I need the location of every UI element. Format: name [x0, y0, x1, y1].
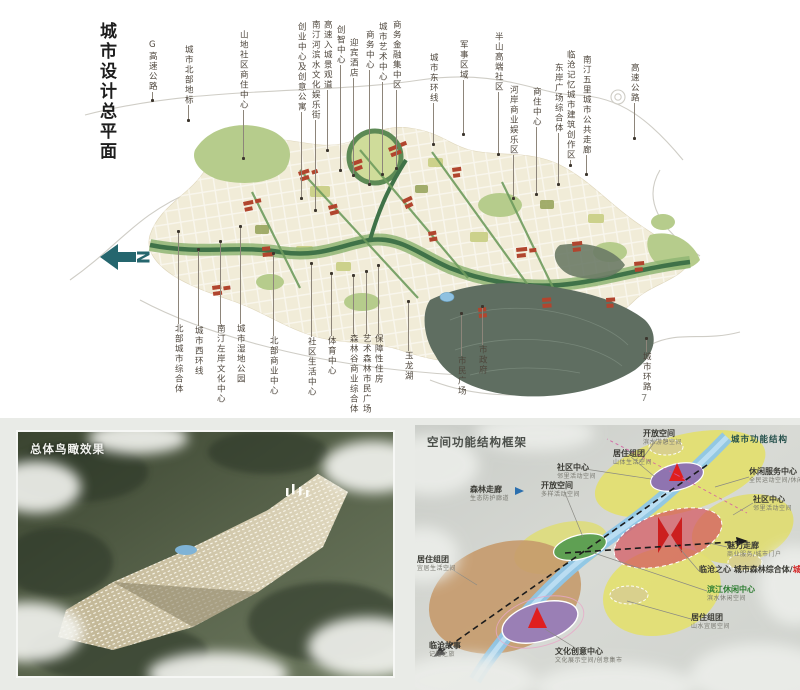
callout-leader-line	[482, 308, 483, 345]
callout-anchor-dot	[535, 193, 538, 196]
callout-leader-line	[513, 155, 514, 197]
callout-leader-line	[301, 112, 302, 197]
callout-leader-line	[558, 133, 559, 183]
callout-leader-line	[646, 340, 647, 352]
callout-leader-line	[220, 243, 221, 324]
map-callout-label: 城市东环线	[429, 53, 438, 103]
callout-leader-line	[463, 80, 464, 133]
aerial-view-panel: 总体鸟瞰效果	[16, 430, 395, 678]
callout-leader-line	[366, 273, 367, 334]
diagram-label: 居住组团山体生活空间	[613, 449, 652, 467]
callout-leader-line	[327, 90, 328, 149]
callout-anchor-dot	[395, 167, 398, 170]
callout-leader-line	[178, 233, 179, 324]
map-callout: 艺术森林市民广场	[360, 270, 372, 414]
master-plan-section: 城市设计总平面 N G高速公路城市北部地标山地社区商住中心创业中心及创意公寓南汀…	[0, 0, 800, 420]
map-callout: 保障性住房	[372, 264, 384, 384]
diagram-label: 森林走廊生态防护廊道	[470, 485, 509, 503]
map-callout-label: 南汀左岸文化中心	[216, 324, 225, 404]
map-callout-label: 河岸商业娱乐区	[509, 85, 518, 155]
callout-anchor-dot	[151, 99, 154, 102]
callout-anchor-dot	[352, 174, 355, 177]
map-callout-label: 商住中心	[532, 87, 541, 127]
callout-leader-line	[408, 303, 409, 351]
page-title: 城市设计总平面	[94, 22, 119, 162]
map-callout-label: 市政府	[478, 345, 487, 375]
map-callout-label: 半山高端社区	[494, 32, 503, 92]
map-callout-label: 商务金融集中区	[392, 20, 401, 90]
map-callout-label: 森林谷商业综合体	[349, 334, 358, 414]
diagram-label: 社区中心邻里活动空间	[557, 463, 596, 481]
map-callout-label: 北部城市综合体	[174, 324, 183, 394]
map-callout-label: 军事区域	[459, 40, 468, 80]
map-callout: 商务中心	[363, 30, 375, 186]
diagram-label: 社区中心邻里活动空间	[753, 495, 792, 513]
callout-anchor-dot	[368, 183, 371, 186]
map-callout: 市政府	[476, 305, 488, 375]
map-callout-label: 城市北部地标	[184, 45, 193, 105]
map-callout: 森林谷商业综合体	[347, 274, 359, 414]
diagram-label: 开放空间多样活动空间	[541, 481, 580, 499]
map-callout: 高速入城景观道	[321, 20, 333, 152]
callout-anchor-dot	[432, 143, 435, 146]
map-callout: 市民广场	[455, 312, 467, 396]
diagram-label: 休闲服务中心全民运动空间/休闲服务	[749, 467, 800, 485]
map-callout: 城市西环线	[192, 248, 204, 376]
map-callout: 城市环路	[640, 337, 652, 392]
map-callout-label: 玉龙湖	[404, 351, 413, 381]
callout-leader-line	[353, 277, 354, 334]
callout-leader-line	[198, 251, 199, 326]
map-callout: 临沧记忆城市建筑创作区	[564, 50, 576, 167]
map-callout: 河岸商业娱乐区	[507, 85, 519, 200]
map-callout-label: 社区生活中心	[307, 337, 316, 397]
map-callout: 体育中心	[325, 272, 337, 376]
callout-anchor-dot	[497, 153, 500, 156]
map-callout-label: 高速入城景观道	[323, 20, 332, 90]
callout-leader-line	[243, 110, 244, 157]
svg-text:N: N	[132, 250, 152, 264]
aerial-view-image	[18, 432, 393, 676]
map-callout: 北部商业中心	[267, 252, 279, 396]
map-callout-label: 临沧记忆城市建筑创作区	[566, 50, 575, 160]
callout-leader-line	[433, 103, 434, 143]
diagram-label: 临沧之心 城市森林综合体/城市地标	[699, 565, 800, 575]
map-callout: 迎宾酒店	[347, 38, 359, 177]
callout-leader-line	[240, 228, 241, 324]
structure-diagram-panel: 空间功能结构框架 城市功能结构 森林走廊生态防护廊道开放空间多样活动空间居住组团…	[415, 425, 800, 690]
diagram-label: 居住组团宜居生活空间	[417, 555, 456, 573]
callout-anchor-dot	[633, 137, 636, 140]
map-callout-label: 市民广场	[457, 356, 466, 396]
callout-anchor-dot	[585, 173, 588, 176]
map-callout-label: 南汀五里城市公共走廊	[582, 55, 591, 155]
map-callout: 南汀河滨水文化娱乐街	[309, 20, 321, 212]
map-callout: 商务金融集中区	[390, 20, 402, 170]
map-callout-label: 创业中心及创意公寓	[297, 22, 306, 112]
callout-anchor-dot	[242, 157, 245, 160]
callout-leader-line	[369, 70, 370, 183]
map-callout-label: 南汀河滨水文化娱乐街	[311, 20, 320, 120]
map-callout: 城市东环线	[427, 53, 439, 146]
map-callout-label: 体育中心	[327, 336, 336, 376]
map-callout: 南汀五里城市公共走廊	[580, 55, 592, 176]
map-callout-label: 北部商业中心	[269, 336, 278, 396]
map-callout: 南汀左岸文化中心	[214, 240, 226, 404]
callout-leader-line	[311, 265, 312, 337]
map-callout: 高速公路	[628, 63, 640, 140]
map-callout-label: 高速公路	[630, 63, 639, 103]
map-callout-label: 迎宾酒店	[349, 38, 358, 78]
map-callout: 玉龙湖	[402, 300, 414, 381]
callout-anchor-dot	[314, 209, 317, 212]
callout-anchor-dot	[512, 197, 515, 200]
callout-leader-line	[378, 267, 379, 334]
map-callout: 北部城市综合体	[172, 230, 184, 394]
callout-leader-line	[340, 65, 341, 169]
map-callout-label: 城市西环线	[194, 326, 203, 376]
callout-anchor-dot	[381, 173, 384, 176]
map-callout-label: 城市艺术中心	[378, 22, 387, 82]
bottom-panels: 总体鸟瞰效果	[0, 418, 800, 690]
map-callout-label: 艺术森林市民广场	[362, 334, 371, 414]
map-callout-label: G高速公路	[148, 40, 157, 92]
map-callout-label: 城市湿地公园	[236, 324, 245, 384]
map-callout-label: 商务中心	[365, 30, 374, 70]
callout-anchor-dot	[339, 169, 342, 172]
callout-anchor-dot	[462, 133, 465, 136]
callout-anchor-dot	[326, 149, 329, 152]
structure-legend-title: 城市功能结构	[731, 433, 788, 445]
diagram-label: 临沧故事记忆之旅	[429, 641, 461, 659]
north-arrow-icon: N	[98, 242, 152, 276]
map-callout: 山地社区商住中心	[237, 30, 249, 160]
page-number: 7	[641, 393, 647, 404]
diagram-label: 滨江休闲中心滨水休闲空间	[707, 585, 755, 603]
map-callout-label: 城市环路	[642, 352, 651, 392]
map-callout: 城市艺术中心	[376, 22, 388, 176]
diagram-label: 居住组团山水宜居空间	[691, 613, 730, 631]
map-callout: 半山高端社区	[492, 32, 504, 156]
map-callout-label: 创智中心	[336, 25, 345, 65]
callout-leader-line	[586, 155, 587, 173]
callout-anchor-dot	[187, 119, 190, 122]
callout-leader-line	[273, 255, 274, 336]
callout-leader-line	[461, 315, 462, 356]
callout-leader-line	[396, 90, 397, 167]
callout-anchor-dot	[569, 164, 572, 167]
map-callout: 军事区域	[457, 40, 469, 136]
map-callout: 城市北部地标	[182, 45, 194, 122]
map-callout-label: 山地社区商住中心	[239, 30, 248, 110]
map-callout: 城市湿地公园	[234, 225, 246, 384]
diagram-label: 开放空间滨水游憩空间	[643, 429, 682, 447]
callout-anchor-dot	[300, 197, 303, 200]
map-callout-label: 东岸广场综合体	[554, 63, 563, 133]
map-callout: 社区生活中心	[305, 262, 317, 397]
map-callout: 东岸广场综合体	[552, 63, 564, 186]
callout-leader-line	[353, 78, 354, 174]
map-callout-label: 保障性住房	[374, 334, 383, 384]
diagram-label: 文化创意中心文化展示空间/创意集市	[555, 647, 623, 665]
callout-leader-line	[331, 275, 332, 336]
callout-leader-line	[188, 105, 189, 119]
map-callout: 创业中心及创意公寓	[295, 22, 307, 200]
diagram-label: 魅力走廊商业服务/城市门户	[727, 541, 782, 559]
callout-leader-line	[315, 120, 316, 209]
callout-leader-line	[152, 92, 153, 99]
map-callout: 商住中心	[530, 87, 542, 196]
structure-diagram-title: 空间功能结构框架	[427, 434, 527, 450]
callout-leader-line	[382, 82, 383, 173]
callout-leader-line	[536, 127, 537, 193]
callout-anchor-dot	[557, 183, 560, 186]
map-callout: G高速公路	[146, 40, 158, 102]
callout-leader-line	[498, 92, 499, 153]
callout-leader-line	[634, 103, 635, 137]
aerial-view-title: 总体鸟瞰效果	[30, 441, 105, 457]
map-callout: 创智中心	[334, 25, 346, 172]
